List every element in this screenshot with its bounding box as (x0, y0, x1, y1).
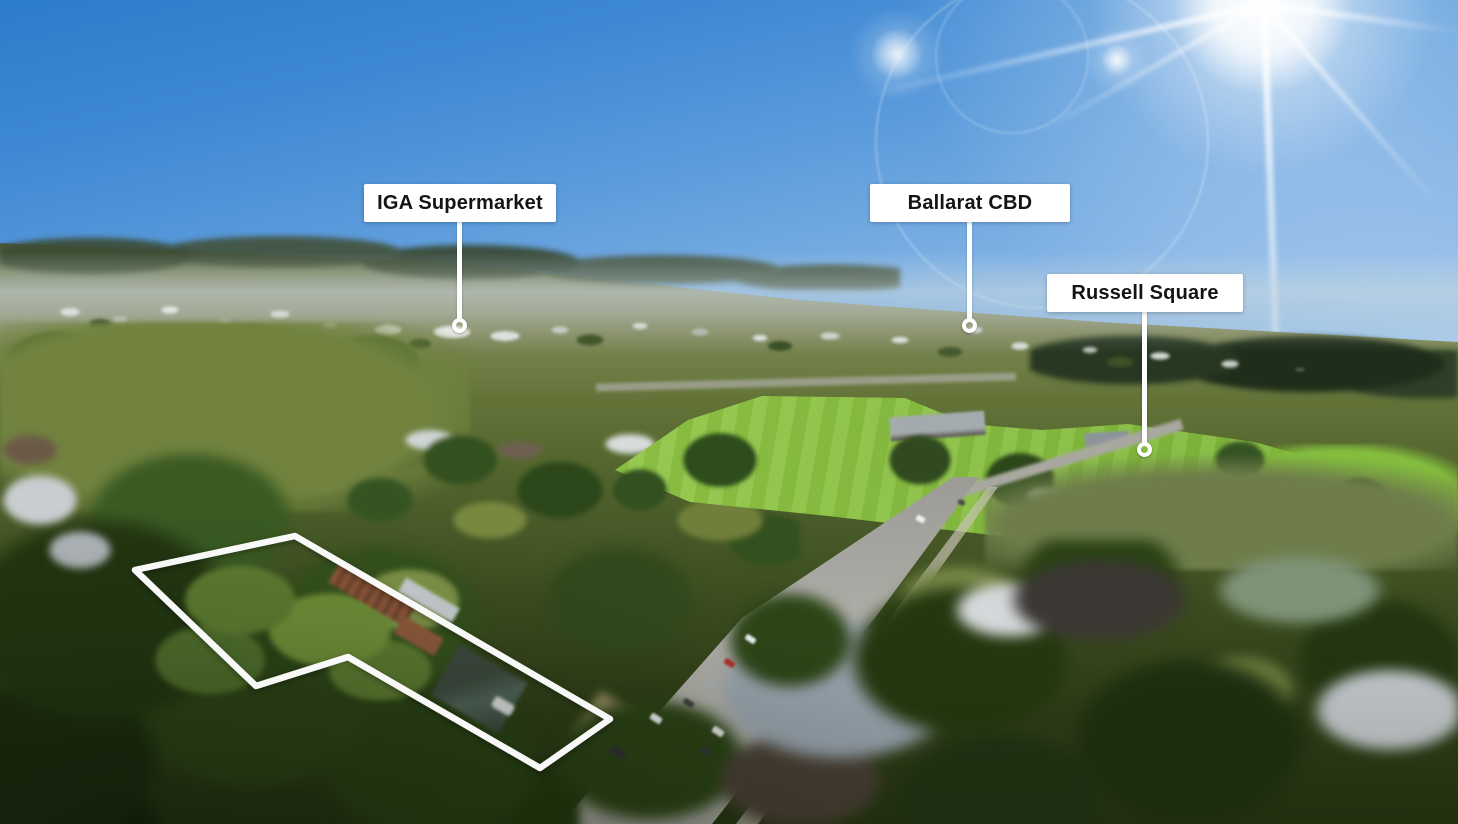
aerial-photo: IGA Supermarket Ballarat CBD Russell Squ… (0, 0, 1458, 824)
property-boundary-polygon (135, 536, 610, 768)
callout-line (967, 221, 972, 320)
callout-label: Russell Square (1047, 274, 1243, 312)
callout-line (1142, 311, 1147, 444)
location-marker-dot (962, 318, 977, 333)
property-outline-svg (0, 0, 1458, 824)
callout-label: Ballarat CBD (870, 184, 1070, 222)
location-marker-dot (452, 318, 467, 333)
location-marker-dot (1137, 442, 1152, 457)
callout-label: IGA Supermarket (364, 184, 556, 222)
callout-line (457, 221, 462, 320)
